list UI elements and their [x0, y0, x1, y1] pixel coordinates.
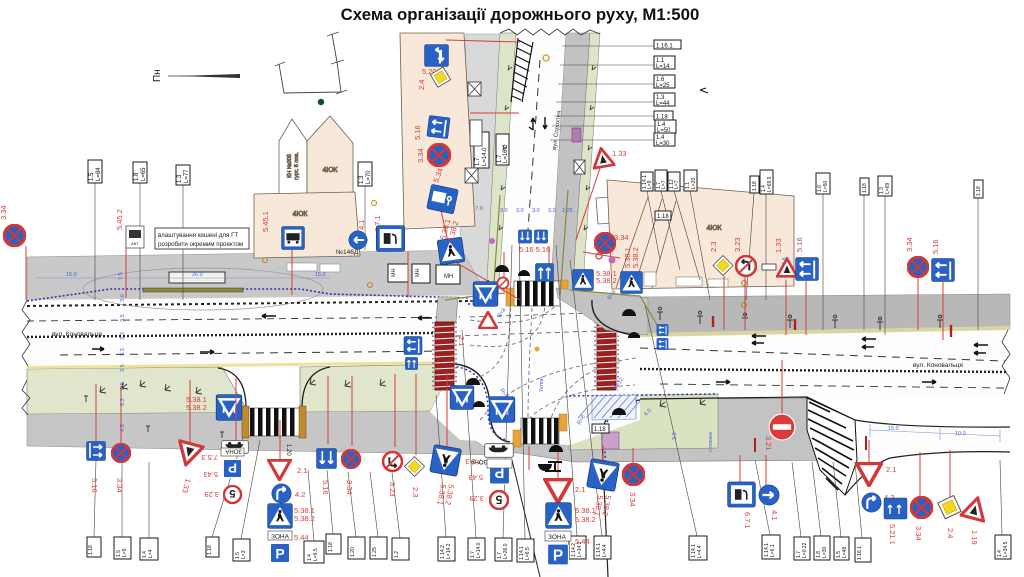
svg-text:L=14.2: L=14.2 [446, 543, 452, 559]
svg-text:L=0.22: L=0.22 [802, 542, 808, 558]
svg-text:5.45.2: 5.45.2 [115, 209, 124, 230]
svg-text:1.5: 1.5 [89, 172, 95, 181]
svg-text:6.2: 6.2 [120, 398, 126, 406]
svg-text:1.7: 1.7 [475, 157, 481, 166]
svg-text:5.44: 5.44 [294, 533, 309, 542]
svg-text:АВТ: АВТ [131, 241, 139, 246]
svg-text:3.34: 3.34 [614, 233, 629, 242]
svg-text:4.5: 4.5 [120, 424, 126, 432]
svg-text:1.18: 1.18 [328, 542, 334, 552]
svg-text:L=6.1: L=6.1 [770, 544, 776, 557]
svg-text:3.5: 3.5 [120, 364, 126, 372]
svg-text:гурт. 6 пов.: гурт. 6 пов. [294, 152, 300, 180]
svg-text:3.34: 3.34 [0, 205, 8, 220]
svg-text:L=48: L=48 [842, 547, 848, 558]
svg-text:4.1: 4.1 [357, 220, 366, 230]
svg-text:5.38.2: 5.38.2 [596, 276, 617, 285]
svg-text:7.5.3: 7.5.3 [201, 453, 218, 462]
svg-text:вул. Коновальця: вул. Коновальця [913, 362, 963, 369]
svg-text:5.16: 5.16 [931, 239, 940, 254]
svg-text:5.21.1: 5.21.1 [888, 524, 897, 545]
svg-text:6.6: 6.6 [782, 257, 788, 265]
svg-text:L=7: L=7 [661, 180, 667, 189]
svg-text:2.3: 2.3 [411, 487, 420, 497]
svg-text:L=84: L=84 [96, 167, 102, 181]
svg-text:ЗОНА: ЗОНА [548, 534, 567, 541]
svg-text:3.29: 3.29 [204, 490, 219, 499]
svg-text:5.45.1: 5.45.1 [261, 211, 270, 232]
svg-text:2.1: 2.1 [297, 466, 307, 475]
svg-text:2.4: 2.4 [417, 80, 426, 90]
svg-text:15.0: 15.0 [66, 272, 77, 278]
svg-text:2.1: 2.1 [457, 336, 466, 346]
svg-text:L=65: L=65 [141, 167, 147, 181]
svg-text:26.0: 26.0 [192, 272, 203, 278]
svg-text:L=20: L=20 [691, 178, 697, 189]
svg-text:L=4.4: L=4.4 [602, 544, 608, 557]
svg-text:5.38.2: 5.38.2 [631, 247, 640, 268]
svg-text:1.25: 1.25 [372, 547, 378, 557]
svg-text:L=30: L=30 [656, 141, 670, 147]
svg-text:1.16.1: 1.16.1 [857, 546, 863, 560]
svg-text:3.5: 3.5 [672, 432, 678, 440]
svg-text:10.0: 10.0 [955, 431, 966, 437]
svg-text:3.34: 3.34 [905, 237, 914, 252]
svg-text:МН: МН [391, 268, 397, 277]
svg-text:5.44: 5.44 [575, 537, 590, 546]
svg-text:L=6.5: L=6.5 [313, 548, 319, 561]
svg-text:4.1: 4.1 [770, 510, 779, 520]
svg-text:L=50: L=50 [823, 181, 829, 192]
svg-text:1.2: 1.2 [394, 551, 400, 558]
svg-text:ЗОНА: ЗОНА [271, 534, 290, 541]
svg-text:3.34: 3.34 [628, 492, 637, 507]
svg-text:L=69: L=69 [885, 183, 891, 194]
svg-text:1.3: 1.3 [359, 175, 365, 184]
svg-text:L=14.0: L=14.0 [482, 147, 488, 166]
svg-text:МН: МН [415, 268, 421, 277]
svg-text:4ЮК: 4ЮК [706, 225, 722, 232]
svg-text:Схема організації дорожнього р: Схема організації дорожнього руху, М1:50… [341, 5, 700, 24]
svg-text:3.5: 3.5 [120, 314, 126, 322]
svg-text:L=3: L=3 [241, 550, 247, 559]
svg-text:1.18: 1.18 [862, 183, 868, 193]
svg-text:1.20: 1.20 [350, 547, 356, 557]
svg-text:L=4.4: L=4.4 [697, 545, 703, 558]
svg-text:3.34: 3.34 [914, 526, 923, 541]
svg-text:3.3: 3.3 [120, 348, 126, 356]
svg-text:4ЮК: 4ЮК [292, 211, 308, 218]
svg-text:3.0: 3.0 [516, 208, 524, 214]
svg-text:4ЮК: 4ЮК [322, 167, 338, 174]
svg-text:1.19: 1.19 [970, 530, 979, 545]
svg-text:5.16 5.16: 5.16 5.16 [519, 245, 550, 254]
svg-text:7.0: 7.0 [475, 206, 483, 212]
svg-text:2.1: 2.1 [886, 465, 896, 474]
svg-text:5.38.2: 5.38.2 [186, 403, 207, 412]
svg-text:L=14.0: L=14.0 [476, 542, 482, 558]
svg-text:3.0: 3.0 [532, 208, 540, 214]
svg-text:Пн: Пн [152, 69, 163, 82]
svg-text:3.3: 3.3 [120, 332, 126, 340]
svg-text:3.0: 3.0 [548, 208, 556, 214]
svg-text:7.5: 7.5 [118, 272, 124, 280]
svg-text:КН №305: КН №305 [287, 154, 293, 178]
svg-text:2.1: 2.1 [575, 485, 585, 494]
svg-text:5.16: 5.16 [90, 478, 99, 493]
svg-text:L=6.5: L=6.5 [525, 547, 531, 560]
svg-text:1.18: 1.18 [752, 181, 758, 191]
svg-text:3.23: 3.23 [733, 237, 742, 252]
svg-text:1.20: 1.20 [285, 444, 291, 456]
svg-text:5.38.2: 5.38.2 [294, 514, 315, 523]
svg-text:5.43: 5.43 [203, 470, 218, 479]
svg-text:2.3: 2.3 [709, 242, 718, 252]
svg-text:1.8: 1.8 [134, 172, 140, 181]
svg-text:L=4: L=4 [148, 549, 154, 558]
svg-text:15.0: 15.0 [315, 272, 326, 278]
svg-text:L=30: L=30 [822, 547, 828, 558]
svg-text:6.7.1: 6.7.1 [743, 512, 752, 529]
svg-text:1.18: 1.18 [657, 214, 669, 220]
svg-text:L=14: L=14 [656, 64, 670, 70]
svg-text:5.43: 5.43 [468, 473, 483, 482]
svg-text:L=25: L=25 [656, 83, 670, 89]
svg-text:L=69.5: L=69.5 [767, 176, 773, 192]
svg-text:3.21: 3.21 [764, 436, 773, 451]
svg-text:L=9: L=9 [647, 180, 653, 189]
svg-text:L=70: L=70 [366, 170, 372, 184]
svg-text:1.33: 1.33 [612, 149, 627, 158]
svg-text:1.18: 1.18 [976, 186, 982, 196]
svg-text:1.18: 1.18 [88, 545, 94, 555]
svg-text:3.34: 3.34 [416, 148, 425, 163]
svg-text:3.0: 3.0 [500, 208, 508, 214]
svg-text:3.0: 3.0 [120, 294, 126, 302]
svg-text:1.33: 1.33 [774, 238, 783, 253]
svg-text:3.23: 3.23 [388, 482, 397, 497]
svg-text:5.38.2: 5.38.2 [575, 515, 596, 524]
svg-text:стоянка: стоянка [708, 431, 714, 452]
svg-text:1.18: 1.18 [594, 427, 606, 433]
svg-text:Уклон: Уклон [539, 377, 545, 392]
svg-text:L=26.0: L=26.0 [503, 543, 509, 559]
svg-text:L=34.5: L=34.5 [1003, 541, 1009, 557]
svg-text:1.16.1: 1.16.1 [656, 44, 673, 50]
svg-text:розробити окремим проектом: розробити окремим проектом [158, 241, 243, 248]
svg-text:L=5: L=5 [122, 548, 128, 557]
svg-text:4.2: 4.2 [295, 490, 305, 499]
svg-text:ЗОНА: ЗОНА [225, 448, 242, 454]
svg-text:3.29: 3.29 [469, 494, 484, 503]
svg-text:5.16: 5.16 [795, 237, 804, 252]
svg-text:2.4: 2.4 [946, 528, 955, 538]
svg-text:ЗОНА: ЗОНА [470, 458, 487, 464]
svg-text:МН: МН [444, 274, 453, 280]
svg-text:L=77: L=77 [184, 169, 190, 183]
svg-text:L=7: L=7 [674, 180, 680, 189]
svg-text:3.34: 3.34 [345, 480, 354, 495]
svg-text:3.34: 3.34 [115, 478, 124, 493]
svg-text:15.0: 15.0 [888, 426, 899, 432]
svg-text:5.16: 5.16 [321, 480, 330, 495]
svg-text:L=44: L=44 [656, 101, 670, 107]
svg-text:5.16: 5.16 [413, 125, 422, 140]
svg-text:№146Д: №146Д [336, 249, 359, 256]
svg-text:1.3: 1.3 [177, 174, 183, 183]
svg-text:влаштування кишені для ГТ: влаштування кишені для ГТ [158, 232, 238, 239]
svg-text:2.25: 2.25 [562, 208, 573, 214]
svg-text:1.18: 1.18 [207, 545, 213, 555]
